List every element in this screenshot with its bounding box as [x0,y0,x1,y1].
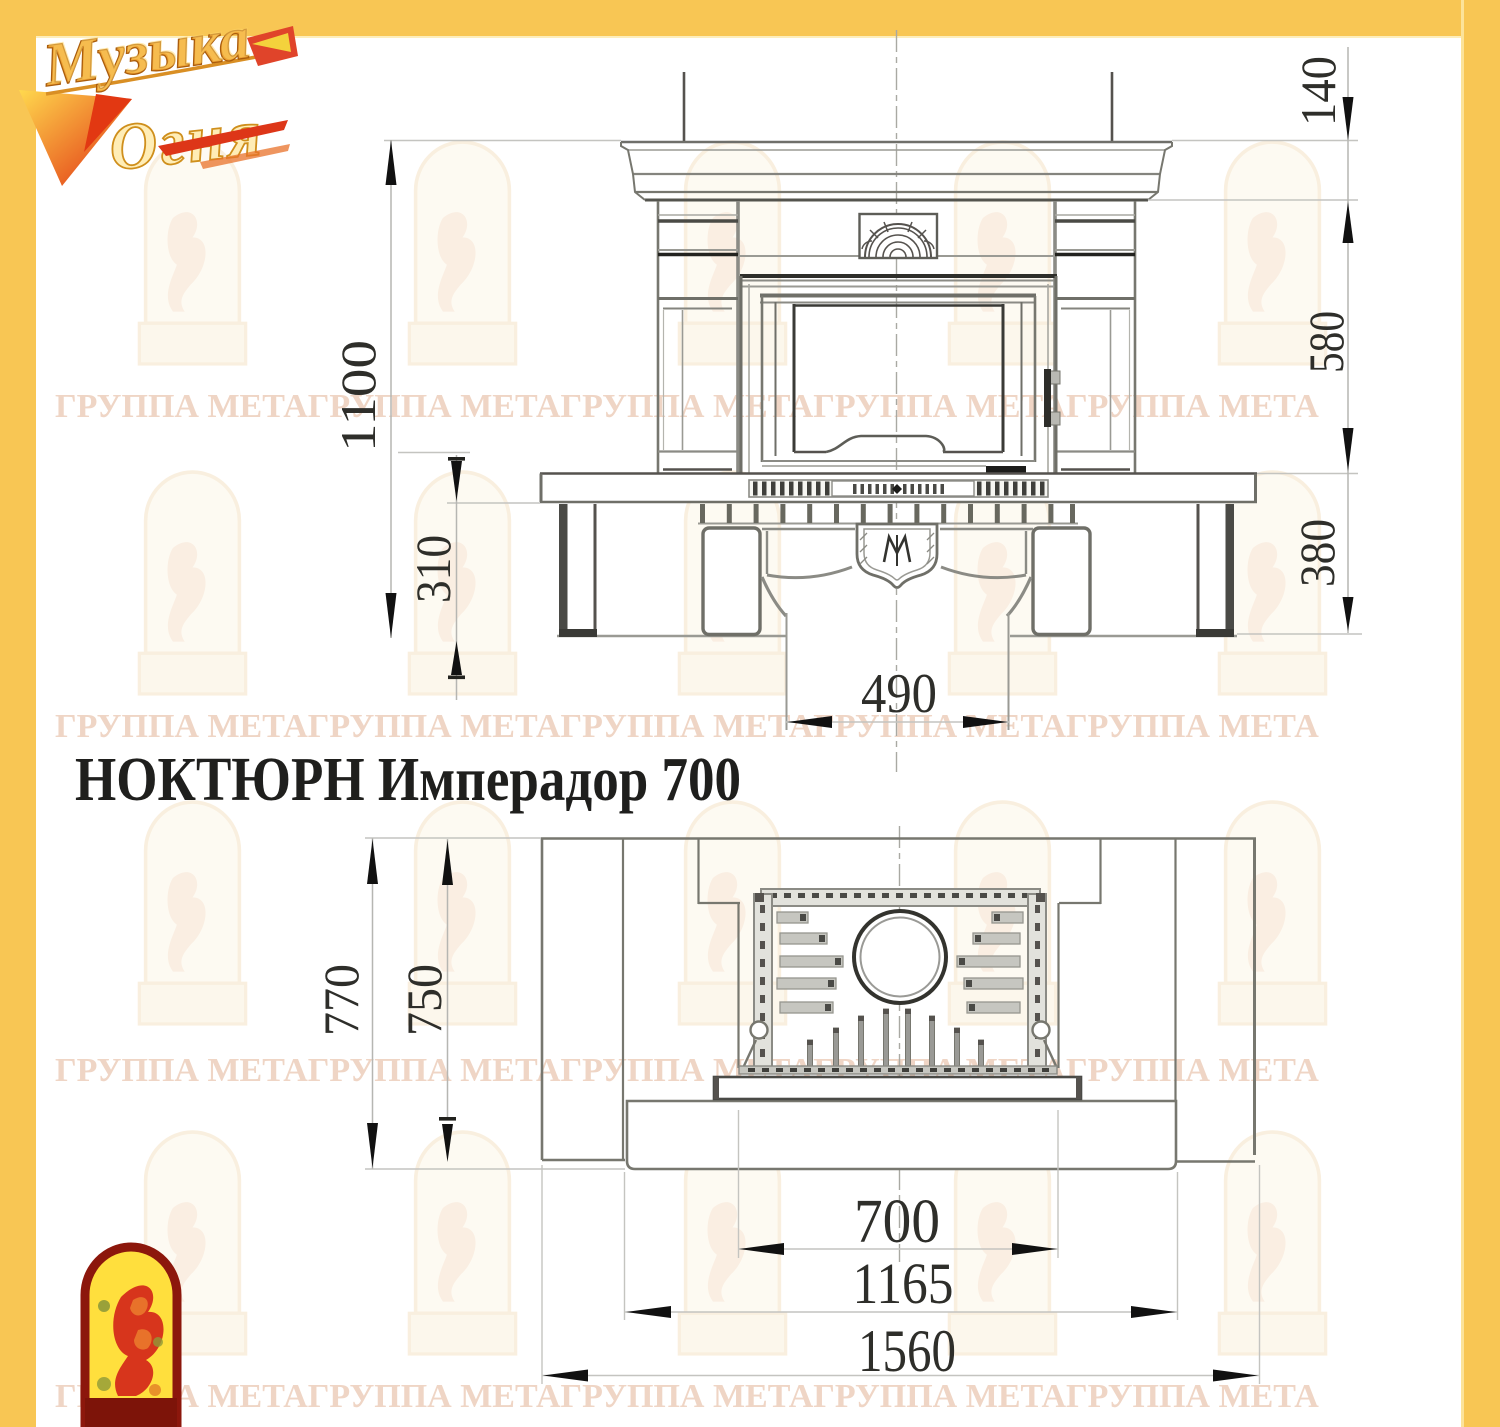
svg-text:490: 490 [861,663,937,725]
svg-text:ГРУППА МЕТАГРУППА МЕТАГРУППА М: ГРУППА МЕТАГРУППА МЕТАГРУППА МЕТАГРУППА … [55,1052,1319,1089]
svg-text:1100: 1100 [330,340,386,452]
svg-text:1165: 1165 [853,1251,954,1316]
svg-text:310: 310 [405,535,461,603]
svg-text:ГРУППА МЕТАГРУППА МЕТАГРУППА М: ГРУППА МЕТАГРУППА МЕТАГРУППА МЕТАГРУППА … [55,708,1319,745]
svg-text:НОКТЮРН Имперадор 700: НОКТЮРН Имперадор 700 [75,746,741,814]
svg-text:140: 140 [1290,56,1346,126]
svg-text:700: 700 [854,1188,940,1256]
svg-text:380: 380 [1289,519,1345,587]
svg-text:770: 770 [313,964,369,1036]
svg-text:580: 580 [1298,311,1354,373]
svg-text:ГРУППА МЕТАГРУППА МЕТАГРУППА М: ГРУППА МЕТАГРУППА МЕТАГРУППА МЕТАГРУППА … [55,1378,1319,1415]
svg-text:750: 750 [396,964,452,1036]
svg-text:1560: 1560 [858,1318,956,1384]
